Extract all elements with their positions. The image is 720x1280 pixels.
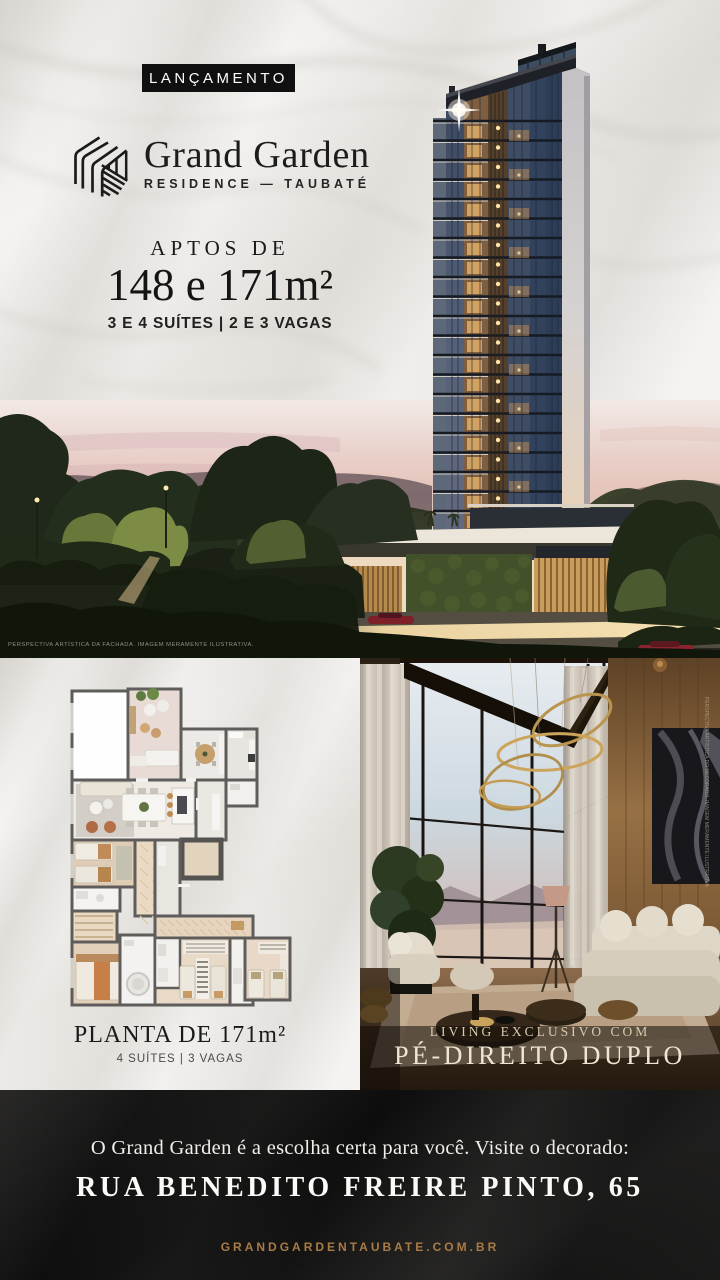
svg-text:PÉ-DIREITO DUPLO: PÉ-DIREITO DUPLO: [394, 1041, 686, 1070]
svg-text:PERSPECTIVA ARTÍSTICA DA FACHA: PERSPECTIVA ARTÍSTICA DA FACHADA. IMAGEM…: [8, 641, 254, 648]
svg-text:PERSPECTIVA ARTÍSTICA DO DECOR: PERSPECTIVA ARTÍSTICA DO DECORADO. IMAGE…: [703, 697, 710, 887]
svg-text:LIVING EXCLUSIVO COM: LIVING EXCLUSIVO COM: [430, 1024, 651, 1039]
